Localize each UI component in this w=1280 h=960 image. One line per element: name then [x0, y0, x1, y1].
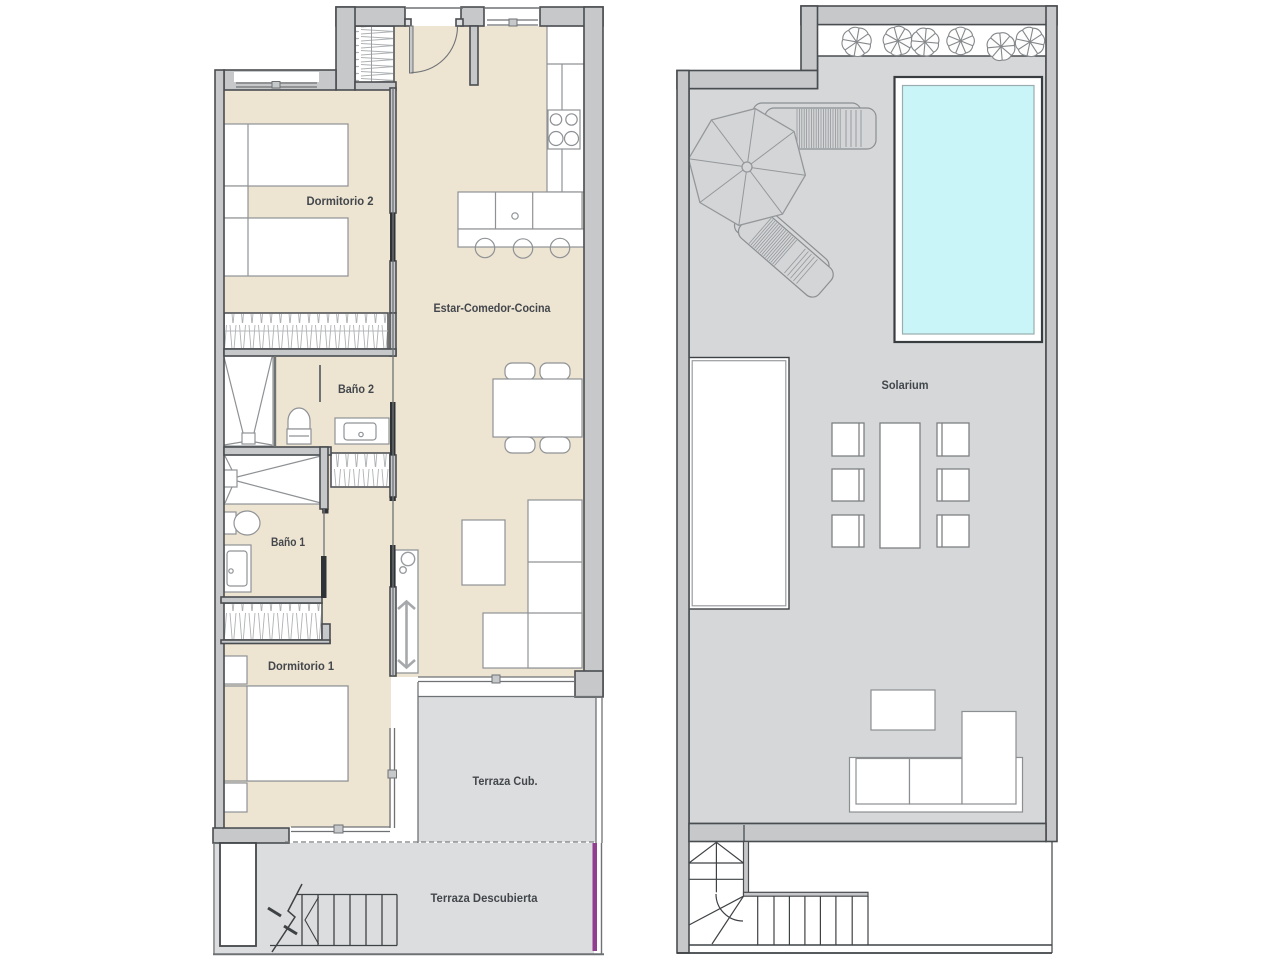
svg-text:Solarium: Solarium: [882, 378, 929, 392]
svg-text:Dormitorio 1: Dormitorio 1: [268, 659, 334, 673]
svg-text:Terraza Cub.: Terraza Cub.: [473, 774, 538, 788]
svg-text:Baño 1: Baño 1: [271, 535, 305, 549]
svg-text:Dormitorio 2: Dormitorio 2: [307, 194, 374, 208]
svg-text:Baño 2: Baño 2: [338, 382, 374, 396]
svg-text:Terraza Descubierta: Terraza Descubierta: [431, 891, 538, 905]
svg-text:Estar-Comedor-Cocina: Estar-Comedor-Cocina: [434, 301, 551, 315]
